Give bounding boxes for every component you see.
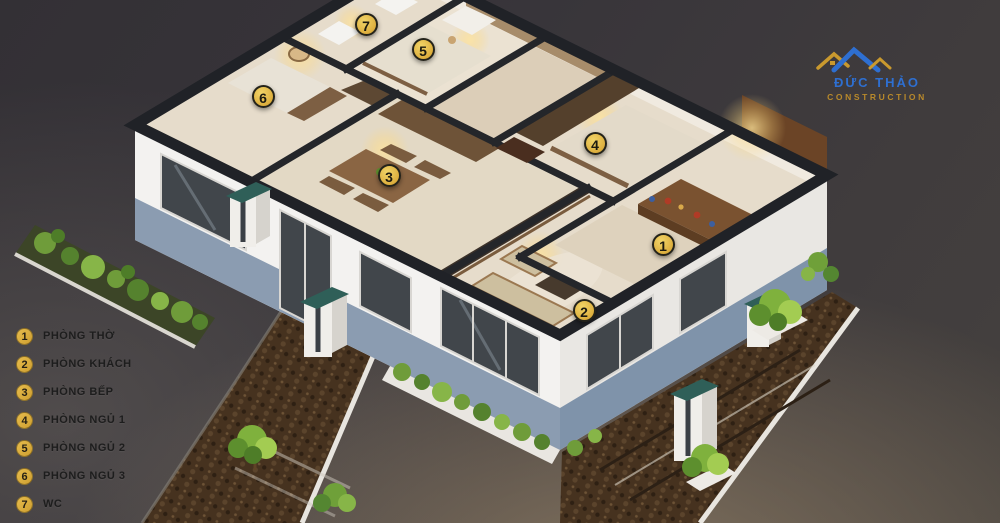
legend-room-label: PHÒNG THỜ [43,330,115,342]
legend-number-badge: 6 [16,468,33,485]
legend-number-badge: 5 [16,440,33,457]
company-tagline: CONSTRUCTION [812,92,942,102]
legend-room-label: PHÒNG KHÁCH [43,358,132,370]
company-logo: ĐỨC THẢO CONSTRUCTION [812,44,942,102]
roof-logo-icon [812,44,896,74]
legend-room-label: PHÒNG BẾP [43,386,114,398]
legend-item-3: 3PHÒNG BẾP [16,378,132,406]
room-marker-3: 3 [378,164,401,187]
legend-item-6: 6PHÒNG NGỦ 3 [16,462,132,490]
legend-item-4: 4PHÒNG NGỦ 1 [16,406,132,434]
room-marker-2: 2 [573,299,596,322]
room-legend: 1PHÒNG THỜ2PHÒNG KHÁCH3PHÒNG BẾP4PHÒNG N… [16,322,132,518]
legend-number-badge: 3 [16,384,33,401]
company-name: ĐỨC THẢO [812,75,942,90]
room-marker-1: 1 [652,233,675,256]
legend-item-2: 2PHÒNG KHÁCH [16,350,132,378]
house-3d-render: 1234567 1PHÒNG THỜ2PHÒNG KHÁCH3PHÒNG BẾP… [0,0,1000,523]
legend-room-label: PHÒNG NGỦ 2 [43,442,126,454]
legend-item-7: 7WC [16,490,132,518]
room-marker-6: 6 [252,85,275,108]
legend-number-badge: 7 [16,496,33,513]
room-marker-5: 5 [412,38,435,61]
legend-item-5: 5PHÒNG NGỦ 2 [16,434,132,462]
room-marker-4: 4 [584,132,607,155]
legend-room-label: PHÒNG NGỦ 3 [43,470,126,482]
legend-item-1: 1PHÒNG THỜ [16,322,132,350]
legend-number-badge: 4 [16,412,33,429]
legend-room-label: WC [43,498,62,510]
legend-room-label: PHÒNG NGỦ 1 [43,414,126,426]
legend-number-badge: 2 [16,356,33,373]
room-marker-7: 7 [355,13,378,36]
legend-number-badge: 1 [16,328,33,345]
